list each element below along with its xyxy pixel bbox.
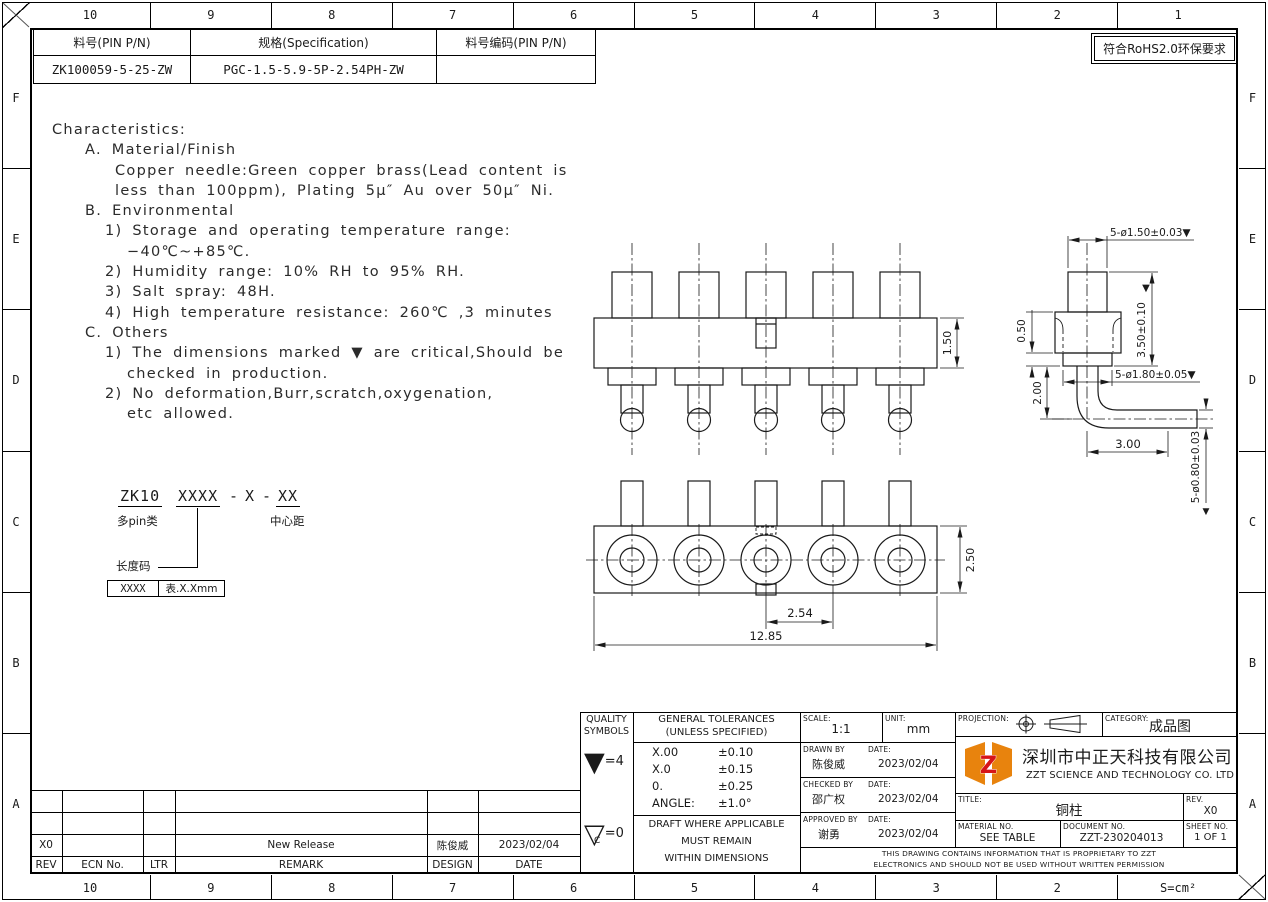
projection-symbol-icon [1008,714,1092,734]
tolerance-header-1: GENERAL TOLERANCES [633,714,800,725]
date-label: DATE: [868,780,891,789]
revision-header: REV [30,856,62,874]
logo-letter: Z [980,751,997,779]
tol-key: X.0 [652,762,671,776]
revision-header: DESIGN [427,856,478,874]
dim-flange: 0.50 [1016,319,1028,342]
revision-header: ECN No. [62,856,143,874]
revision-remark: New Release [175,834,427,856]
draft-note-1: DRAFT WHERE APPLICABLE [633,819,800,830]
unit-value: mm [882,722,955,736]
dim-body-height: 3.50±0.10 [1136,302,1148,358]
drawn-by-name: 陈俊威 [812,756,845,772]
tol-key: 0. [652,779,663,793]
sheet-label: SHEET NO. [1186,822,1228,831]
quality-header-1: QUALITY [580,714,633,725]
checked-by-label: CHECKED BY [803,780,853,789]
revision-header: DATE [478,856,580,874]
critical-mark: ▼ [1142,283,1150,294]
dim-front-height: 1.50 [941,331,954,356]
tol-val: ±0.15 [718,762,753,776]
material-value: SEE TABLE [955,832,1060,844]
rev-label: REV. [1186,795,1203,804]
plan-view [586,481,967,651]
critical-symbol-legend: ▼=4 [584,748,624,778]
approved-by-name: 谢勇 [818,826,840,842]
company-name-en: ZZT SCIENCE AND TECHNOLOGY CO. LTD [1026,770,1234,781]
revision-design: 陈俊威 [427,834,478,856]
sheet-value: 1 OF 1 [1183,832,1238,843]
front-view [594,243,964,455]
drawing-sheet: 10 9 8 7 6 5 4 3 2 1 10 9 8 7 6 5 4 3 2 … [0,0,1268,902]
triangle-letter: C [594,826,600,856]
draft-note-3: WITHIN DIMENSIONS [633,853,800,864]
dim-plan-height: 2.50 [964,548,977,573]
tol-key: ANGLE: [652,796,695,810]
revision-header: REMARK [175,856,427,874]
rev-value: X0 [1183,805,1238,817]
dim-tail-vertical: 2.00 [1032,381,1044,404]
tol-val: ±0.25 [718,779,753,793]
tol-key: X.00 [652,745,678,759]
centerlines [632,243,900,455]
scale-value: 1:1 [800,722,882,736]
revision-ecn [62,834,143,856]
minor-symbol-legend: ▽C=0 [584,820,624,850]
projection-label: PROJECTION: [958,714,1009,723]
revision-header: LTR [143,856,175,874]
outline-triangle-icon: ▽C [584,819,605,850]
material-label: MATERIAL NO. [958,822,1013,831]
proprietary-note-2: ELECTRONICS AND SHOULD NOT BE USED WITHO… [800,860,1238,869]
document-label: DOCUMENT NO. [1063,822,1125,831]
minor-eq: =0 [605,826,624,841]
revision-rev: X0 [30,834,62,856]
dim-total-width: 12.85 [750,629,783,643]
company-name-cn: 深圳市中正天科技有限公司 [1022,743,1232,768]
dim-mid-diameter: 5-ø1.80±0.05▼ [1115,369,1196,381]
drawing-title: 铜柱 [955,799,1183,819]
approved-by-label: APPROVED BY [803,815,858,824]
dim-tail-diameter: 5-ø0.80±0.03 [1190,431,1202,503]
drawn-date: 2023/02/04 [878,758,939,770]
filled-triangle-icon: ▼ [584,747,605,778]
tol-val: ±1.0° [718,796,752,810]
document-number: ZZT-230204013 [1060,832,1183,844]
critical-eq: =4 [605,754,624,769]
checked-by-name: 邵广权 [812,791,845,807]
dim-top-diameter: 5-ø1.50±0.03▼ [1110,227,1191,239]
approved-date: 2023/02/04 [878,828,939,840]
date-label: DATE: [868,745,891,754]
company-logo: Z [961,739,1016,789]
draft-note-2: MUST REMAIN [633,836,800,847]
dim-tail-horizontal: 3.00 [1115,437,1141,451]
date-label: DATE: [868,815,891,824]
revision-date: 2023/02/04 [478,834,580,856]
drawn-by-label: DRAWN BY [803,745,845,754]
revision-ltr [143,834,175,856]
dim-pitch: 2.54 [787,606,813,620]
quality-header-2: SYMBOLS [580,726,633,737]
critical-mark: ▼ [1203,507,1210,517]
tol-val: ±0.10 [718,745,753,759]
tolerance-header-2: (UNLESS SPECIFIED) [633,727,800,738]
proprietary-note-1: THIS DRAWING CONTAINS INFORMATION THAT I… [800,849,1238,858]
category-value: 成品图 [1102,716,1238,736]
checked-date: 2023/02/04 [878,793,939,805]
